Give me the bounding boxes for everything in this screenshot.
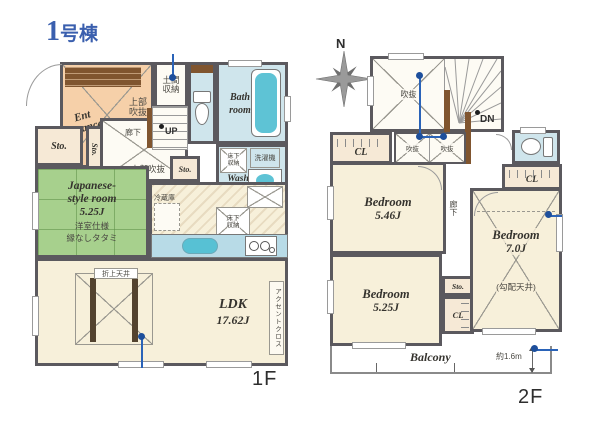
floorplan-canvas: 1号棟 Ent rance 上部 吹抜 土間 収納 Bath room: [0, 0, 600, 425]
window: [327, 280, 334, 314]
compass-n-label: N: [336, 36, 345, 51]
ceiling-beam: [90, 278, 96, 342]
label-entrance-upper-void: 上部 吹抜: [129, 97, 147, 117]
label-bed1-name: Bedroom: [364, 195, 411, 210]
marker-dot: [545, 211, 552, 218]
room-cl-left: CL: [330, 132, 392, 164]
label-bed2-area: 5.25J: [373, 302, 399, 314]
marker-dot: [416, 133, 423, 140]
label-jroom-note2: 縁なしタタミ: [66, 232, 117, 244]
marker-dot: [440, 133, 447, 140]
window: [32, 192, 39, 230]
window: [32, 296, 39, 336]
label-bed3-note: (勾配天井): [496, 281, 536, 293]
label-bed2-name: Bedroom: [362, 287, 409, 302]
closet-rod: [509, 170, 555, 178]
balcony-tick: [454, 363, 455, 372]
label-bed1-area: 5.46J: [375, 210, 401, 222]
closet-rod: [337, 139, 385, 147]
label-jroom-name: Japanese- style room: [68, 180, 117, 206]
window: [327, 186, 334, 220]
stairs-1f-rail: [147, 108, 152, 148]
label-ldk: LDK 17.62J: [188, 297, 278, 328]
marker-dot: [531, 345, 538, 352]
sink-icon: [182, 238, 218, 254]
underfloor-access-box: 床下 収納: [220, 148, 247, 173]
label-bed3-area: 7.0J: [506, 243, 526, 255]
toilet-icon: [193, 91, 211, 127]
room-void-2f: 吹抜: [373, 59, 445, 129]
room-bedroom-525: Bedroom 5.25J: [330, 254, 442, 346]
label-cl-left: CL: [355, 147, 368, 158]
window: [206, 361, 252, 368]
window: [520, 127, 546, 134]
floorplan-1f: Ent rance 上部 吹抜 土間 収納 Bath room 床下 収: [0, 0, 300, 425]
label-bed3-name: Bedroom: [492, 228, 539, 243]
floor-label-2f: 2F: [518, 386, 543, 409]
toilet-icon-2f: [521, 137, 555, 157]
marker-line: [536, 349, 558, 351]
up-dot: [159, 124, 164, 129]
label-corridor-1f: 廊下: [125, 127, 141, 138]
toilet-shelf: [191, 65, 213, 73]
range-hood-box: [247, 186, 283, 208]
label-ldk-area: 17.62J: [217, 313, 250, 328]
closet-rod: [461, 302, 469, 328]
label-jroom-note1: 洋室仕様: [75, 220, 109, 232]
window: [228, 60, 262, 67]
label-storage-2f: Sto.: [452, 282, 464, 291]
room-ldk: LDK 17.62J 折上天井 アクセントクロス: [35, 258, 288, 366]
toilet-door-arc: [496, 134, 512, 150]
label-storage-vert: Sto.: [90, 143, 99, 156]
label-void-2f: 吹抜: [401, 89, 417, 100]
fridge-space: [154, 203, 180, 231]
marker-dot: [138, 333, 145, 340]
room-doma-storage: 土間 収納: [154, 62, 188, 108]
label-storage-left: Sto.: [51, 141, 67, 152]
window: [367, 76, 374, 106]
room-toilet-2f: [512, 130, 560, 164]
entrance-door-arc: [26, 64, 62, 106]
stove-icon: [245, 236, 277, 256]
room-bath: Bath room: [216, 62, 288, 144]
label-coffered: 折上天井: [94, 268, 138, 279]
marker-dot: [169, 74, 176, 81]
washer-box: 洗濯機: [250, 148, 280, 168]
label-balcony-depth: 約1.6m: [496, 351, 522, 362]
label-kitchen-underfloor: 床下 収納: [227, 215, 240, 229]
compass-icon: [314, 50, 374, 108]
ceiling-beam: [132, 278, 138, 342]
window: [388, 53, 424, 60]
accent-cloth-strip: アクセントクロス: [269, 281, 284, 355]
floorplan-2f: N 吹抜 DN: [300, 0, 600, 425]
label-washer: 洗濯機: [255, 153, 276, 163]
label-fridge: 冷蔵庫: [154, 193, 175, 203]
room-storage-mid: Sto.: [170, 156, 200, 182]
window: [556, 214, 563, 252]
shoe-cabinet: [65, 67, 141, 87]
marker-line: [141, 338, 143, 368]
window: [482, 328, 536, 335]
balcony-tick: [376, 363, 377, 372]
window: [352, 342, 406, 349]
room-japanese: Japanese- style room 5.25J 洋室仕様 縁なしタタミ: [35, 166, 149, 258]
label-dn: DN: [480, 114, 494, 125]
label-accent-cloth: アクセントクロス: [272, 288, 282, 348]
marker-dot: [416, 72, 423, 79]
window: [284, 96, 291, 122]
room-kitchen: 冷蔵庫 床下 収納: [149, 182, 288, 258]
room-storage-left: Sto.: [35, 126, 83, 166]
void-small-1: 吹抜: [396, 134, 430, 162]
floor-label-1f: 1F: [252, 368, 277, 391]
label-balcony: Balcony: [410, 350, 451, 365]
kitchen-underfloor-box: 床下 収納: [216, 207, 250, 237]
dimension-arrow-down: [529, 368, 535, 373]
room-cl-right: CL: [502, 164, 562, 190]
label-storage-mid: Sto.: [179, 165, 192, 174]
void-small-2: 吹抜: [430, 134, 464, 162]
label-jroom-area: 5.25J: [80, 206, 105, 218]
label-up: UP: [165, 126, 178, 136]
marker-line: [419, 76, 421, 138]
kitchen-counter: [151, 234, 288, 258]
label-underfloor-access: 床下 収納: [227, 154, 239, 167]
label-ldk-name: LDK: [219, 297, 247, 313]
stair-wall: [444, 90, 450, 134]
bathtub-icon: [251, 69, 281, 137]
label-corridor-2f: 廊下: [448, 200, 459, 216]
room-toilet-1f: [188, 62, 216, 144]
